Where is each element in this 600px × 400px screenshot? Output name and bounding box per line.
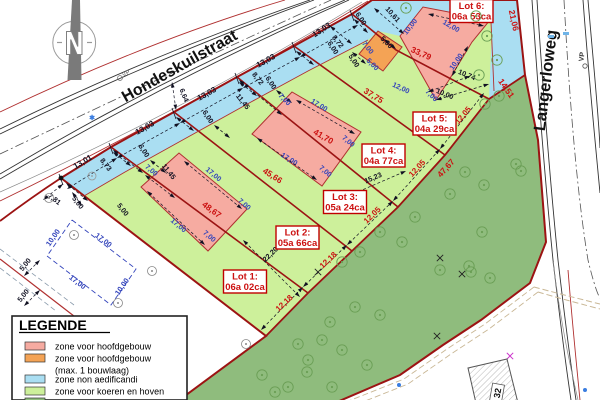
- svg-text:04a 29ca: 04a 29ca: [415, 124, 455, 135]
- svg-text:VP: VP: [578, 51, 586, 61]
- svg-text:Lot 2:: Lot 2:: [285, 228, 311, 239]
- svg-text:Lot 6:: Lot 6:: [459, 1, 485, 12]
- svg-text:Lot 1:: Lot 1:: [232, 272, 258, 283]
- svg-text:05a 66ca: 05a 66ca: [278, 238, 318, 249]
- svg-text:zone voor hoofdgebouw: zone voor hoofdgebouw: [55, 354, 152, 364]
- svg-text:06a 02ca: 06a 02ca: [225, 282, 265, 293]
- svg-text:Lot 5:: Lot 5:: [422, 114, 448, 125]
- svg-text:✱: ✱: [89, 114, 95, 122]
- svg-text:04a 77ca: 04a 77ca: [364, 156, 404, 167]
- svg-text:32: 32: [492, 387, 504, 399]
- svg-text:05a 24ca: 05a 24ca: [325, 203, 365, 214]
- svg-text:zone non aedificandi: zone non aedificandi: [55, 375, 138, 385]
- svg-text:zone voor koeren en hoven: zone voor koeren en hoven: [55, 387, 164, 397]
- svg-text:zone voor hoofdgebouw: zone voor hoofdgebouw: [55, 342, 152, 352]
- svg-text:LEGENDE: LEGENDE: [19, 317, 87, 333]
- svg-text:Lot 3:: Lot 3:: [332, 192, 358, 203]
- svg-text:Lot 4:: Lot 4:: [371, 146, 397, 157]
